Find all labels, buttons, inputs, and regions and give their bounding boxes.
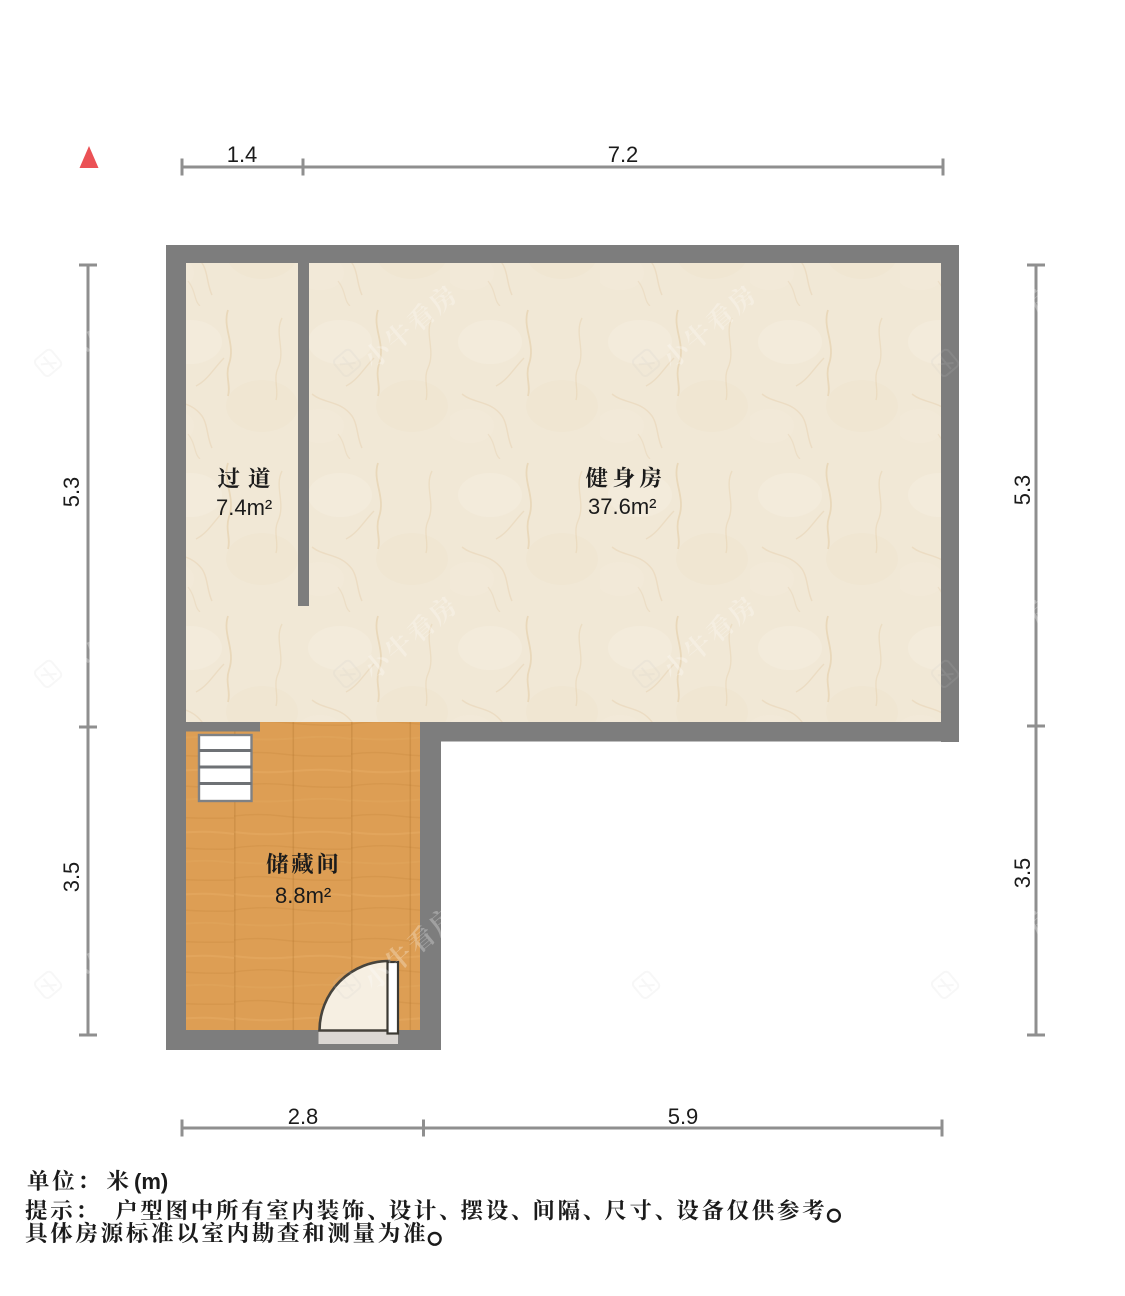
svg-text:3.5: 3.5 [59,862,84,893]
svg-text:7.4m²: 7.4m² [216,495,272,520]
svg-text:5.3: 5.3 [59,477,84,508]
svg-text:1.4: 1.4 [227,142,258,167]
svg-text:2.8: 2.8 [288,1104,319,1129]
svg-text:5.9: 5.9 [668,1104,699,1129]
svg-text:5.3: 5.3 [1010,475,1035,506]
svg-text:37.6m²: 37.6m² [588,494,656,519]
svg-text:(m): (m) [134,1169,168,1194]
svg-text:3.5: 3.5 [1010,858,1035,889]
svg-text:8.8m²: 8.8m² [275,883,331,908]
svg-text:7.2: 7.2 [608,142,639,167]
